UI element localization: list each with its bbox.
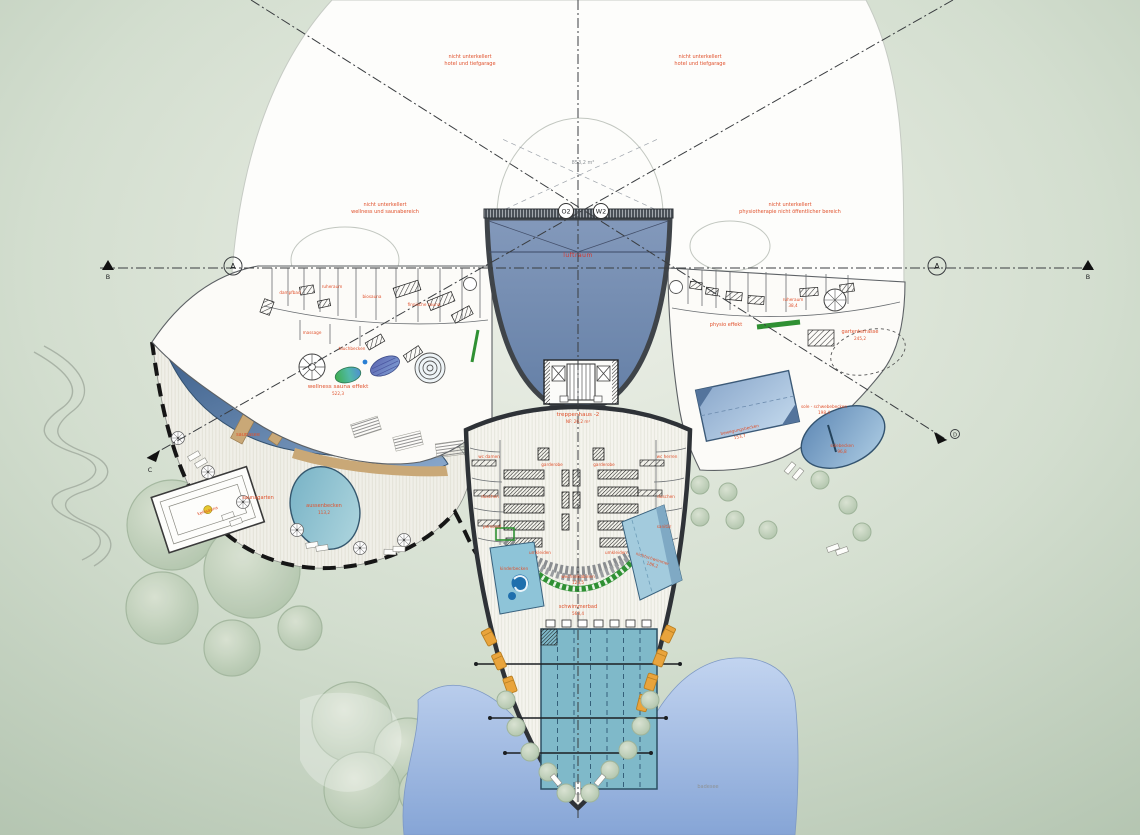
sauna-cabin-circle bbox=[299, 354, 325, 380]
gartenterrasse-area: 245,2 bbox=[854, 336, 866, 341]
kinderbecken-label: kinderbecken bbox=[500, 566, 529, 571]
section-label-b-right: B bbox=[1086, 273, 1090, 281]
room-finnische-sauna: finnische sauna bbox=[408, 302, 441, 307]
umkleiden-left-label: umkleiden bbox=[529, 550, 551, 555]
sanitaer-label: sanitär bbox=[657, 524, 672, 529]
wc-herren-label: wc herren bbox=[657, 454, 678, 459]
wechselkabinen-label: wechselkabinen bbox=[561, 574, 595, 579]
solebecken-label: solebecken bbox=[830, 443, 854, 448]
floor-plan-canvas: A A B B C D O2 W2 nicht unterkellert hot… bbox=[0, 0, 1140, 835]
umkleiden-right-label: umkleiden bbox=[605, 550, 627, 555]
section-label-d: D bbox=[953, 433, 957, 439]
duschen-right-label: duschen bbox=[657, 494, 675, 499]
aussenbecken-label: aussenbecken bbox=[306, 503, 342, 509]
personal-label: personal bbox=[483, 524, 501, 529]
section-label-b-left: B bbox=[106, 273, 110, 281]
grid-label-a-right: A bbox=[934, 262, 940, 271]
ruheraum-right-area: 38,4 bbox=[788, 303, 798, 308]
aussenbecken-area: 113,2 bbox=[318, 510, 330, 515]
axis-label-w2: W2 bbox=[596, 208, 606, 216]
room-biosauna: biosauna bbox=[362, 294, 381, 299]
room-massage: massage bbox=[303, 330, 322, 335]
ruheraum-right-label: ruheraum bbox=[783, 297, 804, 302]
luftraum-label: luftraum bbox=[563, 252, 593, 259]
note-mid-left-2: wellness und saunabereich bbox=[351, 209, 419, 215]
gartenterrasse-label: gartenterrasse bbox=[842, 329, 879, 335]
relax-ring-room bbox=[415, 353, 445, 383]
note-mid-right-1: nicht unterkellert bbox=[768, 202, 811, 208]
saunagarten-label: saunagarten bbox=[242, 495, 274, 501]
start-blocks bbox=[546, 620, 651, 627]
room-tauchbecken: tauchbecken bbox=[339, 346, 366, 351]
stair-core bbox=[544, 360, 618, 404]
schwebebecken-label: sole - schwebebecken bbox=[801, 404, 847, 409]
badesee-label: badesee bbox=[697, 784, 718, 790]
physio-label: physio effekt bbox=[710, 322, 742, 328]
solebecken-area: 96,8 bbox=[837, 449, 847, 454]
wellness-zone-area: 522,3 bbox=[332, 391, 344, 396]
garderobe-left-label: garderobe bbox=[541, 462, 563, 467]
note-top-left-1: nicht unterkellert bbox=[448, 54, 491, 60]
section-label-c: C bbox=[148, 466, 153, 474]
plunge-dot bbox=[363, 360, 368, 365]
note-top-left-2: hotel und tiefgarage bbox=[444, 61, 495, 67]
revolving-door-right bbox=[670, 281, 683, 294]
wellness-zone-label: wellness sauna effekt bbox=[308, 384, 369, 390]
duschen-left-label: duschen bbox=[481, 494, 499, 499]
room-dampfbad: dampfbad bbox=[279, 290, 301, 295]
schwimmerbad-label: schwimmerbad bbox=[559, 604, 597, 610]
saunasee-label: saunasee bbox=[236, 432, 260, 438]
stair-flight bbox=[567, 364, 595, 400]
room-ruheraum: ruheraum bbox=[322, 284, 343, 289]
grid-label-a-left: A bbox=[230, 262, 236, 271]
stair-area-label: NF: 26,2 m² bbox=[566, 419, 591, 424]
axis-label-o2: O2 bbox=[561, 208, 570, 216]
revolving-door-left bbox=[464, 278, 477, 291]
stair-label: treppenhaus -2 bbox=[557, 412, 600, 418]
site-plan-drawing: A A B B C D O2 W2 nicht unterkellert hot… bbox=[0, 0, 1140, 835]
note-mid-right-2: physiotherapie nicht öffentlicher bereic… bbox=[739, 209, 841, 215]
wc-damen-label: wc damen bbox=[478, 454, 500, 459]
hall-area-label: 853,2 m² bbox=[572, 160, 595, 166]
note-top-right-1: nicht unterkellert bbox=[678, 54, 721, 60]
garderobe-right-label: garderobe bbox=[593, 462, 615, 467]
schwimmerbad-area: 563,4 bbox=[572, 611, 584, 616]
wechselkabinen-area: 123,5 bbox=[572, 580, 584, 585]
sauna-cabin-circle-right bbox=[824, 289, 846, 311]
note-top-right-2: hotel und tiefgarage bbox=[674, 61, 725, 67]
schwebebecken-area: 198,4 bbox=[818, 410, 830, 415]
note-mid-left-1: nicht unterkellert bbox=[363, 202, 406, 208]
